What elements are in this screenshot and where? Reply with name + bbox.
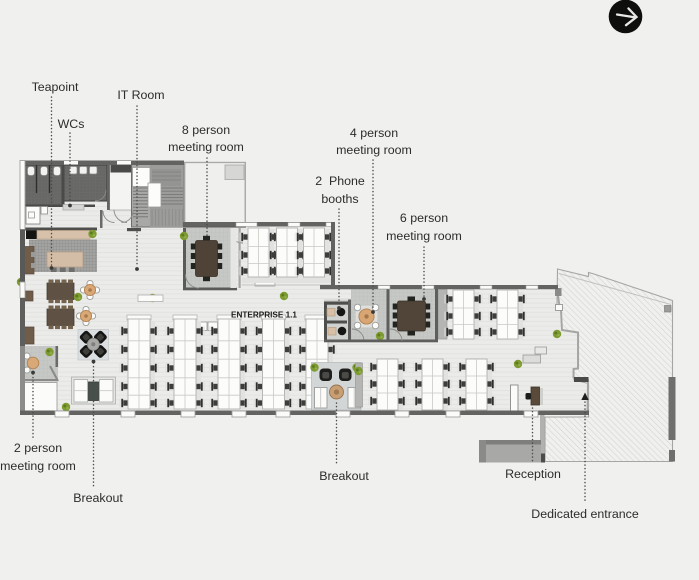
- svg-text:meeting room: meeting room: [336, 143, 412, 157]
- svg-text:4 person: 4 person: [350, 126, 398, 140]
- svg-text:meeting room: meeting room: [168, 140, 244, 154]
- svg-text:2 person: 2 person: [14, 441, 62, 455]
- svg-text:Teapoint: Teapoint: [32, 80, 79, 94]
- svg-text:WCs: WCs: [58, 117, 85, 131]
- svg-text:Breakout: Breakout: [319, 469, 369, 483]
- svg-text:meeting room: meeting room: [0, 459, 76, 473]
- svg-text:ENTERPRISE 1.1: ENTERPRISE 1.1: [231, 311, 297, 320]
- svg-text:Breakout: Breakout: [73, 491, 123, 505]
- svg-text:Reception: Reception: [505, 467, 561, 481]
- svg-text:2 Phone: 2 Phone: [315, 174, 365, 188]
- svg-text:booths: booths: [321, 192, 358, 206]
- svg-text:IT Room: IT Room: [117, 88, 164, 102]
- svg-text:8 person: 8 person: [182, 123, 230, 137]
- svg-text:6 person: 6 person: [400, 211, 448, 225]
- svg-text:meeting room: meeting room: [386, 229, 462, 243]
- svg-text:Dedicated entrance: Dedicated entrance: [531, 507, 639, 521]
